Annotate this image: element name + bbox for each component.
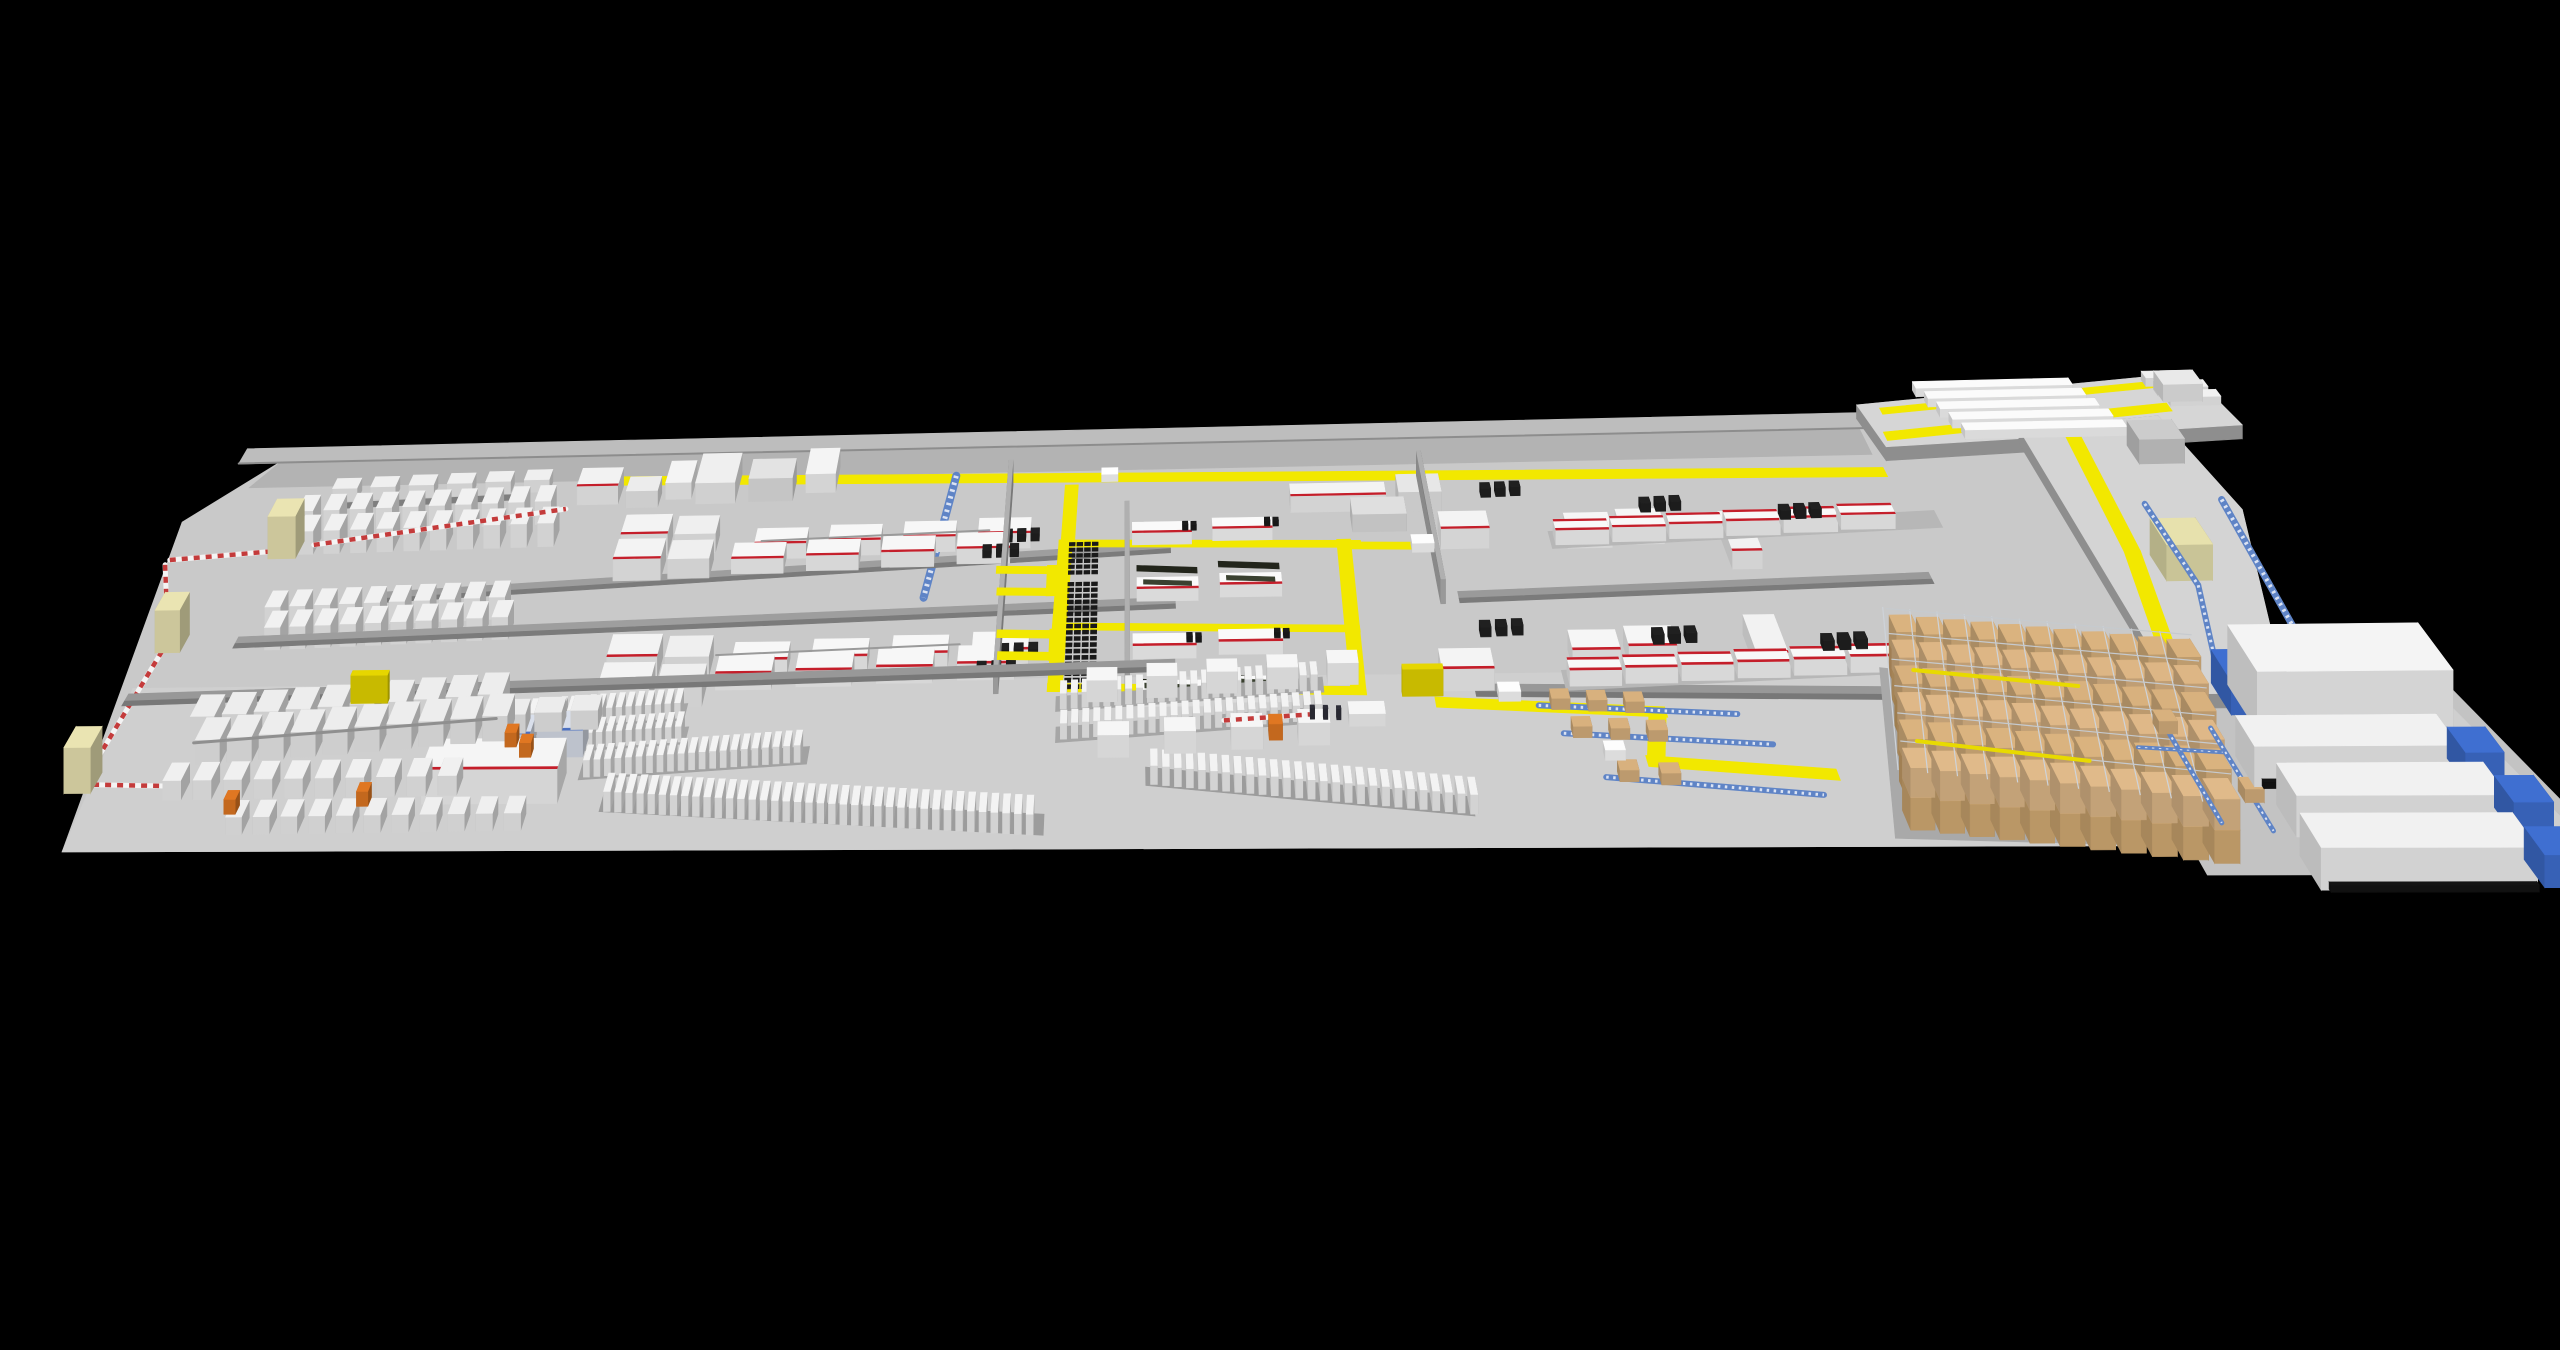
line-equipment xyxy=(1821,632,1868,651)
back-machine xyxy=(577,468,624,505)
line-equipment xyxy=(1651,626,1697,645)
control-cabinets xyxy=(983,543,1019,558)
striped-conveyor-front xyxy=(93,785,165,786)
yellow-gantry xyxy=(1402,664,1443,697)
carton-on-conveyor xyxy=(1550,689,1645,713)
isometric-scene-canvas xyxy=(0,0,2560,1350)
agv-loop-bar xyxy=(1059,540,1362,548)
agv xyxy=(1102,468,1118,482)
process-machine xyxy=(613,539,666,581)
agv xyxy=(1411,534,1434,552)
assembly-table xyxy=(1212,517,1272,541)
truck-chassis xyxy=(2329,882,2539,893)
agv xyxy=(1497,682,1521,702)
elevator-tower xyxy=(155,592,189,653)
work-desk xyxy=(1348,701,1386,726)
workers xyxy=(1310,705,1341,720)
factory-3d-render xyxy=(0,0,2560,1350)
back-machine xyxy=(696,453,743,504)
back-machine xyxy=(626,476,662,508)
carton-on-conveyor xyxy=(1571,716,1668,741)
robot-arm xyxy=(357,782,372,806)
yellow-gantry xyxy=(351,670,390,703)
mezz-storage-box xyxy=(2154,370,2203,402)
back-machine xyxy=(749,458,797,501)
line-equipment xyxy=(1778,502,1821,519)
elevator-tower xyxy=(268,499,304,559)
front-left-machines xyxy=(226,796,527,835)
line-end-machine xyxy=(1438,511,1490,549)
line-equipment xyxy=(1479,618,1523,637)
line-end-machine xyxy=(1438,648,1494,691)
agv-loop-ext xyxy=(1351,542,1420,549)
back-machine xyxy=(666,461,697,500)
mezz-hvac-unit xyxy=(2127,420,2185,464)
packing-machine xyxy=(1350,497,1406,532)
line-equipment xyxy=(1639,495,1681,512)
robot-arm xyxy=(505,724,519,747)
line-equipment xyxy=(1480,481,1521,498)
back-machine xyxy=(806,448,840,493)
process-machine xyxy=(668,540,714,579)
robot-arm xyxy=(1269,714,1283,740)
agv xyxy=(1603,741,1626,761)
robot-arm xyxy=(224,790,240,814)
robot-arm xyxy=(519,734,533,757)
truck-trailer xyxy=(2300,813,2538,891)
assembly-table xyxy=(1218,629,1283,655)
